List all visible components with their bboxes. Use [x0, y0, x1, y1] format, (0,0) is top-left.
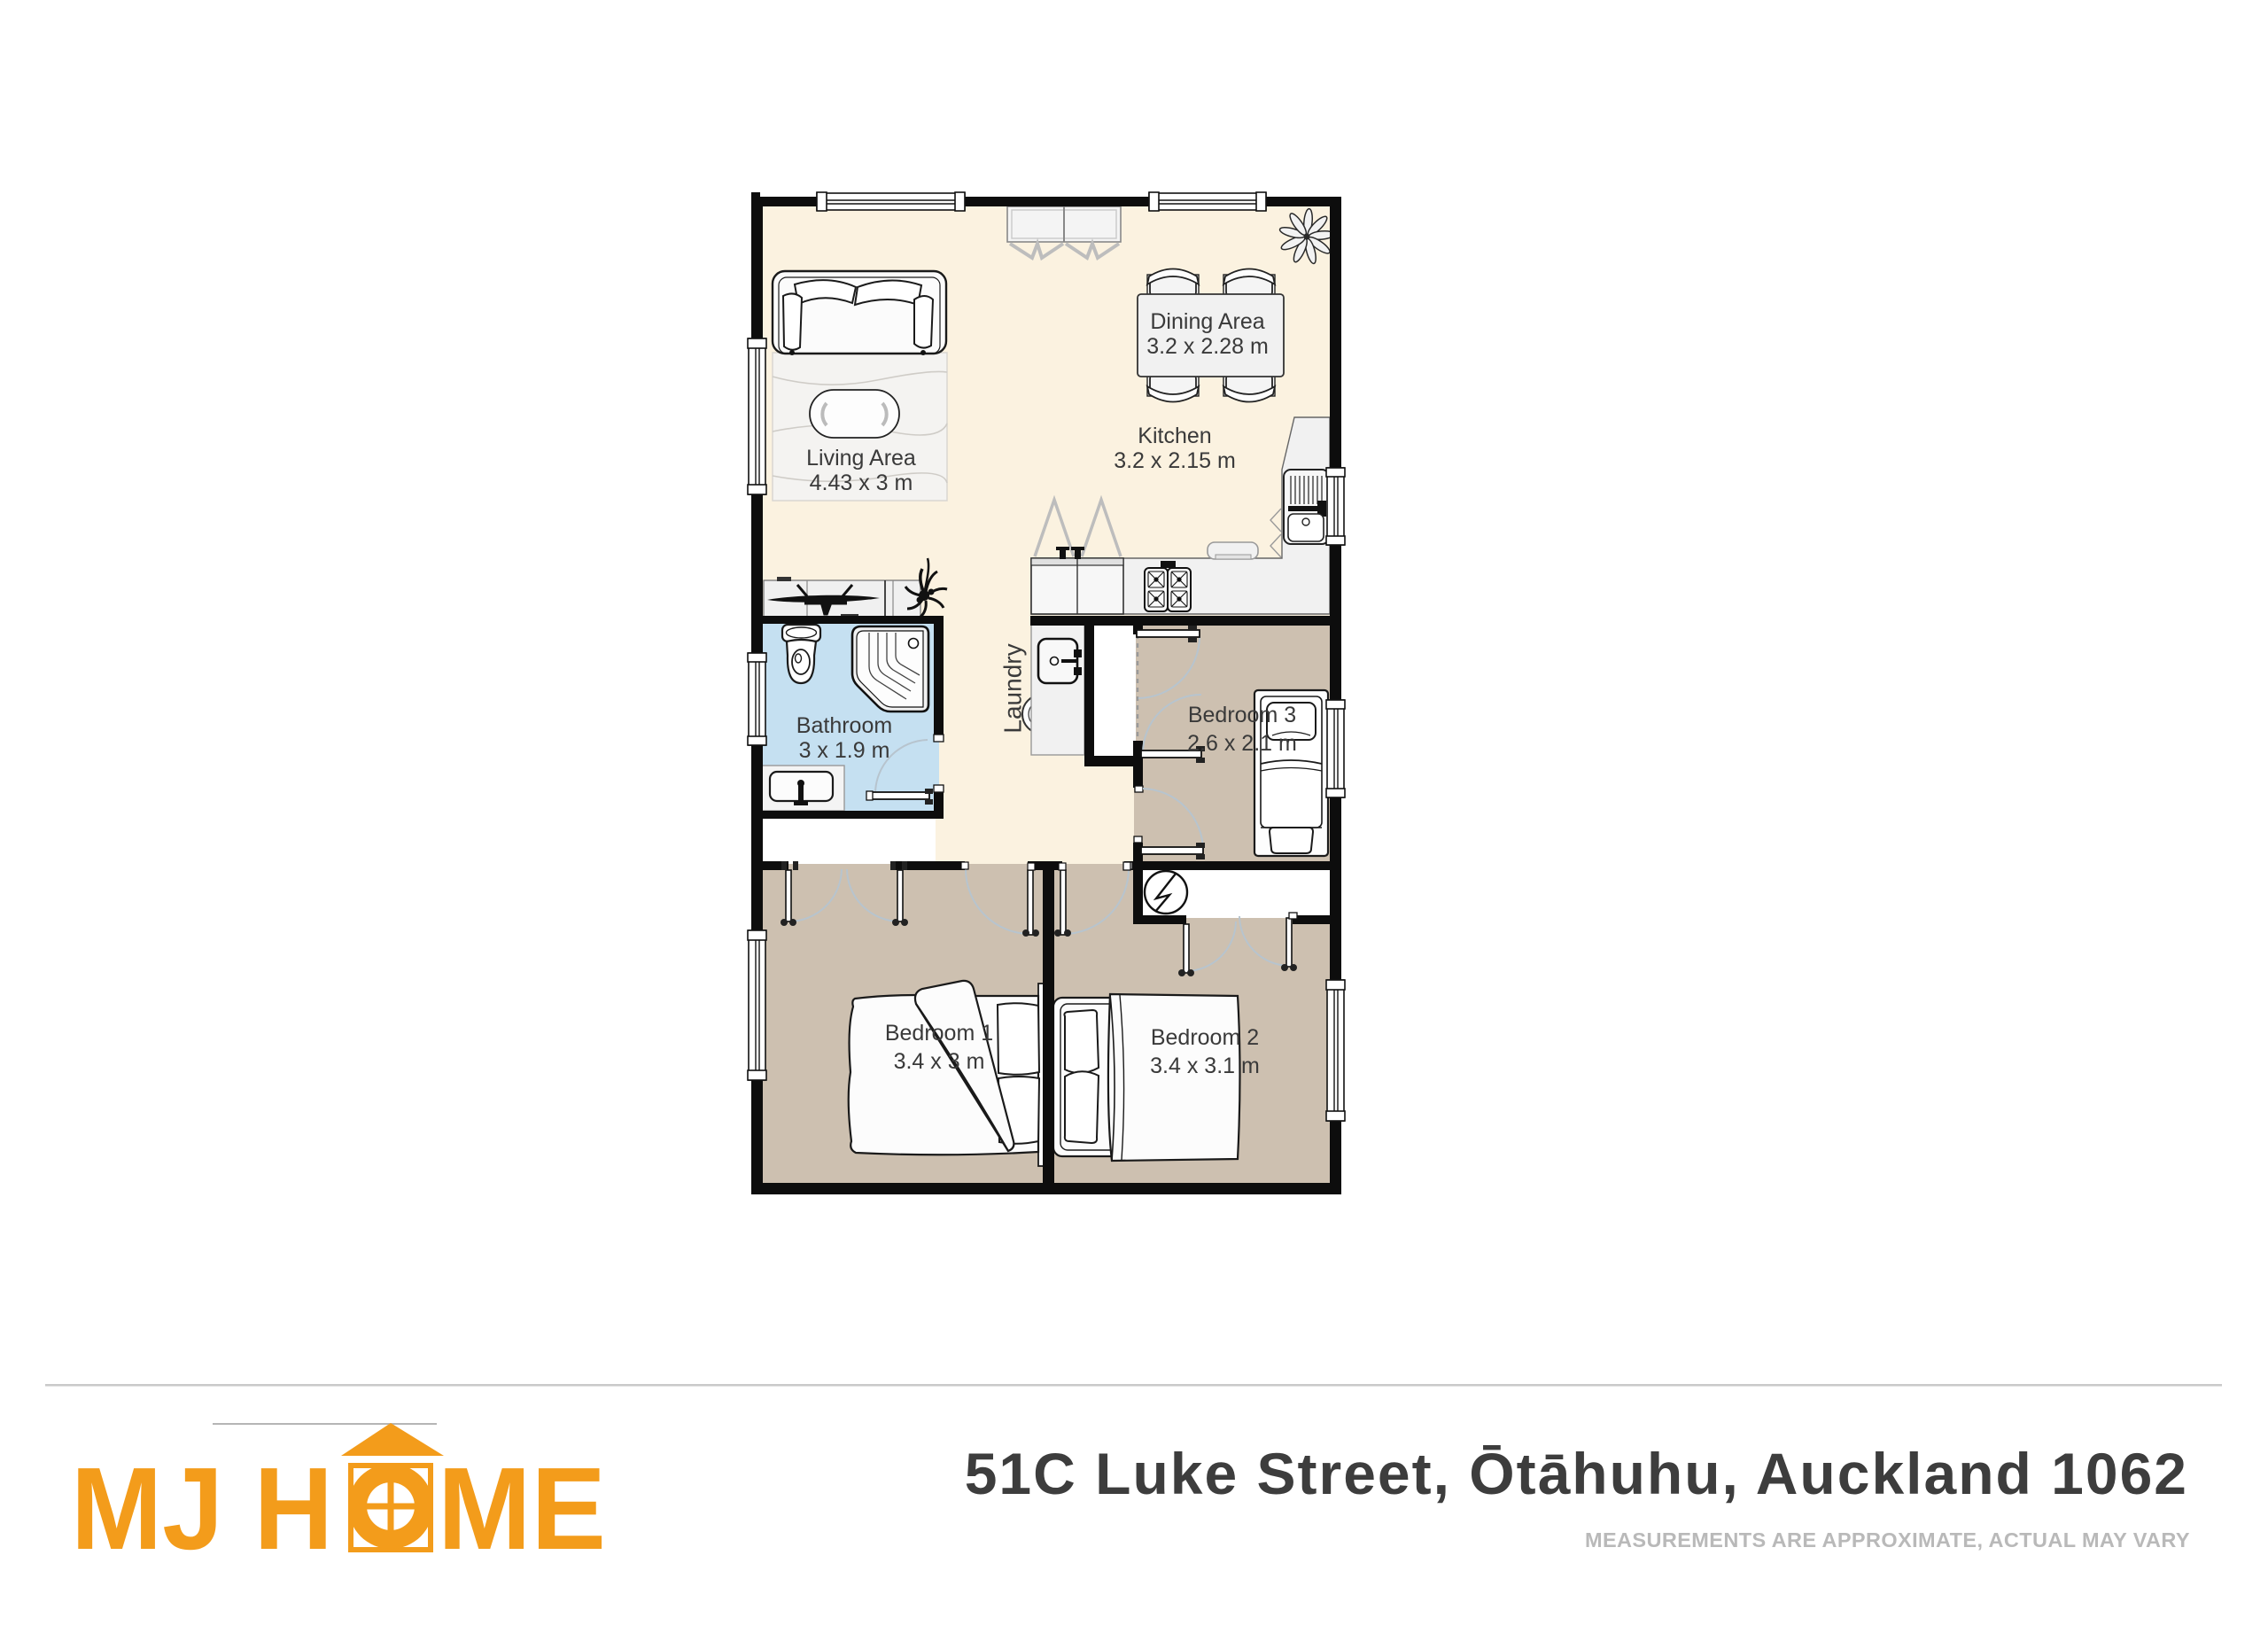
- svg-text:4.43 x 3 m: 4.43 x 3 m: [810, 470, 913, 495]
- svg-text:3.2 x 2.28 m: 3.2 x 2.28 m: [1146, 334, 1269, 359]
- svg-text:MJ H: MJ H: [71, 1443, 333, 1574]
- svg-text:51C Luke Street, Ōtāhuhu, Auck: 51C Luke Street, Ōtāhuhu, Auckland 1062: [965, 1441, 2188, 1506]
- svg-text:Bedroom 1: Bedroom 1: [885, 1021, 993, 1046]
- svg-text:Bedroom 3: Bedroom 3: [1188, 703, 1296, 727]
- svg-text:Living Area: Living Area: [806, 446, 916, 470]
- svg-text:3 x 1.9 m: 3 x 1.9 m: [799, 738, 890, 763]
- svg-text:Bathroom: Bathroom: [796, 713, 892, 738]
- svg-text:ME: ME: [438, 1443, 606, 1574]
- svg-text:MEASUREMENTS ARE APPROXIMATE,: MEASUREMENTS ARE APPROXIMATE, ACTUAL MAY…: [1585, 1528, 2190, 1551]
- svg-text:3.4 x 3.1 m: 3.4 x 3.1 m: [1150, 1054, 1260, 1078]
- svg-text:Kitchen: Kitchen: [1138, 424, 1211, 448]
- svg-text:3.4 x 3 m: 3.4 x 3 m: [894, 1049, 985, 1074]
- svg-text:Dining Area: Dining Area: [1150, 309, 1264, 334]
- svg-text:Bedroom 2: Bedroom 2: [1151, 1025, 1259, 1050]
- svg-text:2.6 x 2.1 m: 2.6 x 2.1 m: [1187, 731, 1297, 756]
- svg-text:3.2 x 2.15 m: 3.2 x 2.15 m: [1114, 448, 1236, 473]
- svg-text:Laundry: Laundry: [998, 643, 1026, 733]
